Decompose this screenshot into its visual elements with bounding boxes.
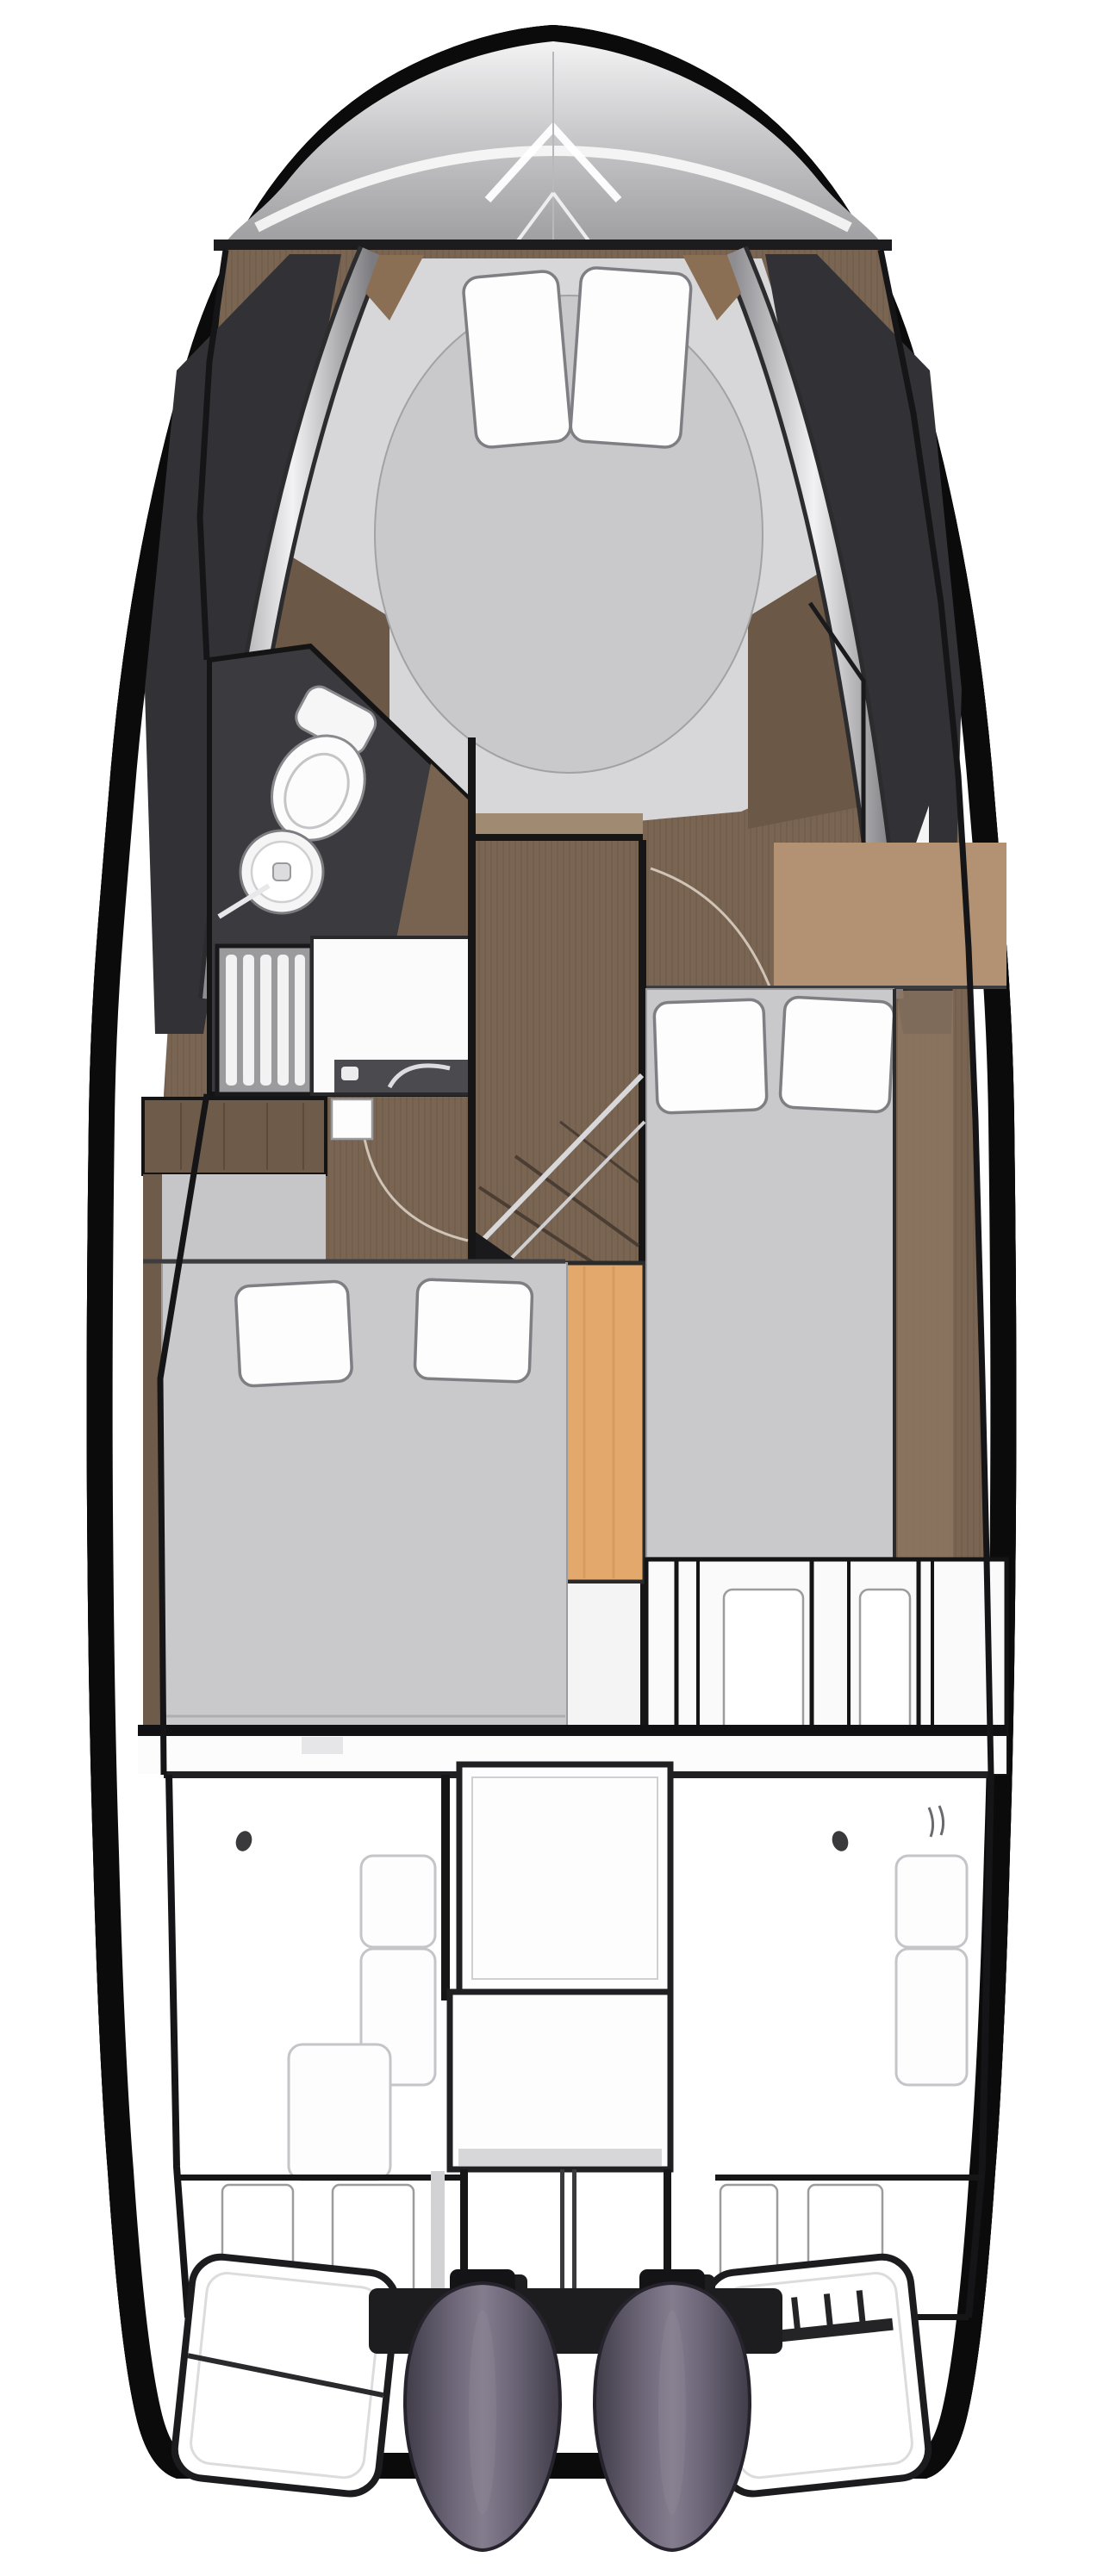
bulkhead-line-1 xyxy=(138,1725,1006,1736)
bathroom-door-leaf xyxy=(332,1099,372,1139)
shower-grating xyxy=(217,946,312,1094)
bow-sun-deck xyxy=(214,41,892,260)
bench-cushion-left-upper xyxy=(361,1856,435,1947)
module-panel-b xyxy=(860,1590,910,1738)
engine-left xyxy=(405,2269,560,2550)
console-gray-strip xyxy=(458,2149,662,2166)
side-wood-light xyxy=(898,991,953,1558)
mid-cabin-pillow-left xyxy=(235,1281,352,1387)
vanity-unit xyxy=(312,937,470,1094)
bench-cushion-right-upper xyxy=(896,1856,967,1947)
windshield-base-line xyxy=(214,240,892,251)
locker-row-line-right xyxy=(715,2175,982,2181)
locker-row-line-left xyxy=(177,2175,461,2181)
console-divider-post xyxy=(441,1775,450,2000)
vberth-pillow-right xyxy=(570,267,692,448)
bench-cushion-left-corner xyxy=(289,2044,390,2180)
threshold-line xyxy=(472,834,643,841)
threshold-step xyxy=(472,813,643,836)
bench-cushion-right-lower xyxy=(896,1949,967,2085)
cockpit-console xyxy=(450,1764,670,2169)
engine-right-highlight xyxy=(658,2311,686,2514)
walkway-notch xyxy=(302,1737,343,1754)
vberth-pillow-left xyxy=(463,271,572,449)
aft-cabin-pillow-right xyxy=(780,997,895,1112)
cabin-floor-gray xyxy=(148,1174,326,1264)
module-panel-a xyxy=(724,1590,803,1738)
aft-cabin-pillow-left xyxy=(654,999,767,1113)
boat-floorplan-canvas xyxy=(0,0,1103,2576)
white-strip-below-steps xyxy=(567,1584,640,1732)
wall-stair-left xyxy=(468,737,476,1265)
engine-left-highlight xyxy=(469,2311,496,2514)
stern xyxy=(171,2254,931,2550)
floorplan-svg xyxy=(0,0,1103,2576)
swim-platform-left xyxy=(171,2254,399,2496)
vberth-mattress xyxy=(375,296,763,773)
mid-cabin-pillow-right xyxy=(414,1279,533,1383)
vanity-knob xyxy=(341,1067,358,1080)
basin-drain xyxy=(273,863,290,880)
dresser xyxy=(143,1098,326,1174)
engine-right xyxy=(595,2269,750,2550)
orange-steps xyxy=(564,1263,645,1582)
